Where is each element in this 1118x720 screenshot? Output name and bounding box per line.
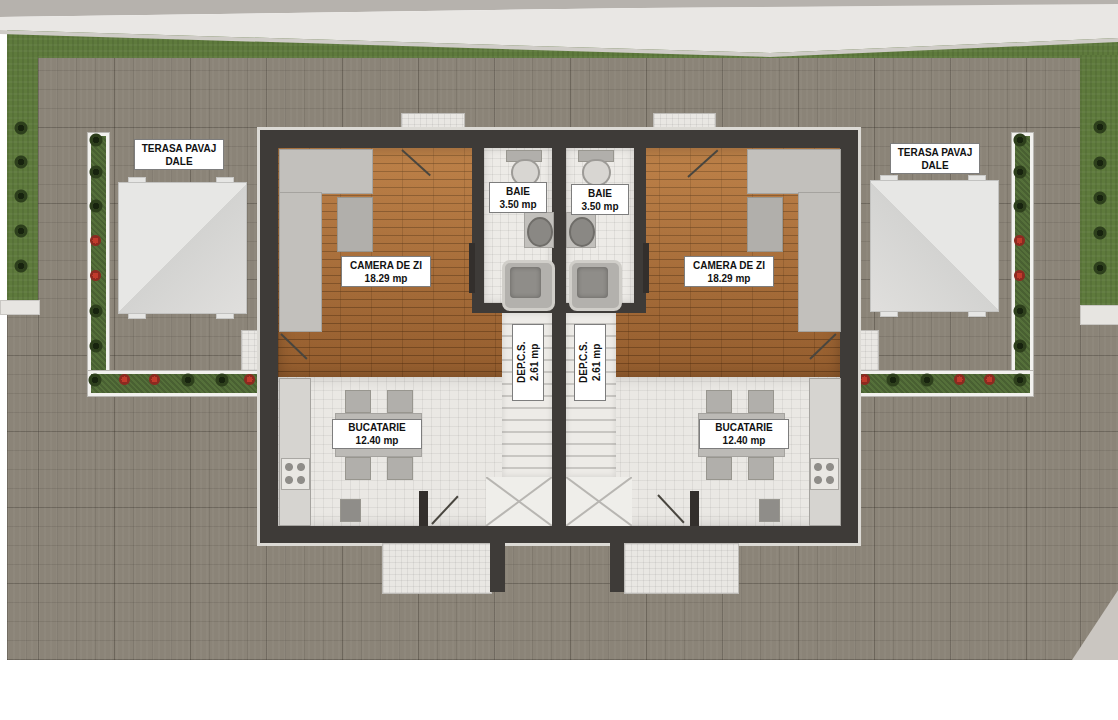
cabinet-right (747, 197, 783, 252)
doormat-right (759, 499, 780, 522)
kitchen-counter-right (809, 378, 841, 526)
flower (1012, 233, 1027, 248)
shrub (180, 372, 196, 388)
shrub (13, 120, 29, 136)
kitchen-counter-left (279, 378, 311, 526)
shrub (1012, 164, 1028, 180)
stair-landing-left (486, 477, 552, 526)
sink-right (569, 217, 595, 247)
shrub (1012, 198, 1028, 214)
lawn-right (1080, 55, 1118, 323)
sofa-right (747, 149, 841, 194)
sink-left (527, 217, 553, 247)
flower (982, 372, 997, 387)
entrance-jamb-right (690, 491, 699, 526)
label-kitchen-left: BUCATARIE12.40 mp (332, 419, 422, 449)
chair (706, 390, 732, 413)
chair (345, 457, 371, 480)
chair (387, 457, 413, 480)
shrub (1092, 190, 1108, 206)
side-step-left (241, 330, 262, 371)
shower-tray-right (577, 267, 608, 298)
doormat-left (340, 499, 361, 522)
shrub (87, 372, 103, 388)
flower (117, 372, 132, 387)
entrance-jamb-left (419, 491, 428, 526)
shrub (1012, 303, 1028, 319)
boundary-wall (0, 0, 1118, 60)
chair (345, 390, 371, 413)
shrub (1092, 260, 1108, 276)
label-kitchen-right: BUCATARIE12.40 mp (699, 419, 789, 449)
shrub (88, 338, 104, 354)
toilet-right (582, 159, 611, 186)
label-living-right: CAMERA DE ZI18.29 mp (684, 256, 774, 287)
shrub (13, 223, 29, 239)
porch-pillar-left (490, 543, 505, 592)
flower (1012, 268, 1027, 283)
door-frame-right (643, 243, 649, 293)
shrub (1092, 155, 1108, 171)
flower (88, 268, 103, 283)
terrace-slab-right (870, 180, 999, 312)
planter-right-horizontal (853, 371, 1033, 396)
flower (88, 233, 103, 248)
stove-right (810, 458, 839, 490)
terrace-slab-left (118, 182, 247, 314)
shrub (1012, 372, 1028, 388)
shrub (88, 164, 104, 180)
shrub (88, 303, 104, 319)
wardrobe-right (798, 192, 841, 332)
chair (706, 457, 732, 480)
chair (748, 390, 774, 413)
shrub (885, 372, 901, 388)
shrub (214, 372, 230, 388)
label-storage-left: DEP.C.S.2.61 mp (512, 324, 544, 401)
shrub (13, 188, 29, 204)
label-terrace-left: TERASA PAVAJDALE (134, 139, 224, 170)
curb-right (1080, 305, 1118, 325)
entrance-porch-left (382, 543, 492, 594)
planter-left-horizontal (88, 371, 268, 396)
door-frame-left (469, 243, 475, 293)
flower (147, 372, 162, 387)
sofa-left (279, 149, 373, 194)
flower (242, 372, 257, 387)
shrub (1012, 132, 1028, 148)
shrub (88, 132, 104, 148)
shrub (1092, 225, 1108, 241)
label-terrace-right: TERASA PAVAJDALE (890, 143, 980, 174)
cabinet-left (337, 197, 373, 252)
shower-tray-left (510, 267, 541, 298)
curb-left (0, 300, 40, 315)
label-storage-right: DEP.C.S.2.61 mp (574, 324, 606, 401)
label-living-left: CAMERA DE ZI18.29 mp (341, 256, 431, 287)
shrub (1012, 338, 1028, 354)
porch-pillar-right (610, 543, 624, 592)
shrub (13, 258, 29, 274)
site-plan: TERASA PAVAJDALE TERASA PAVAJDALE CAMERA… (0, 0, 1118, 720)
shrub (88, 198, 104, 214)
shrub (919, 372, 935, 388)
chair (387, 390, 413, 413)
flower (952, 372, 967, 387)
shrub (1092, 119, 1108, 135)
flower (857, 372, 872, 387)
shrub (13, 154, 29, 170)
entrance-porch-right (624, 543, 739, 594)
paved-yard-left (7, 313, 38, 660)
stove-left (281, 458, 310, 490)
stair-landing-right (566, 477, 632, 526)
chair (748, 457, 774, 480)
label-bath-left: BAIE3.50 mp (489, 182, 547, 213)
label-bath-right: BAIE3.50 mp (571, 184, 629, 215)
side-step-right (858, 330, 879, 371)
wardrobe-left (279, 192, 322, 332)
